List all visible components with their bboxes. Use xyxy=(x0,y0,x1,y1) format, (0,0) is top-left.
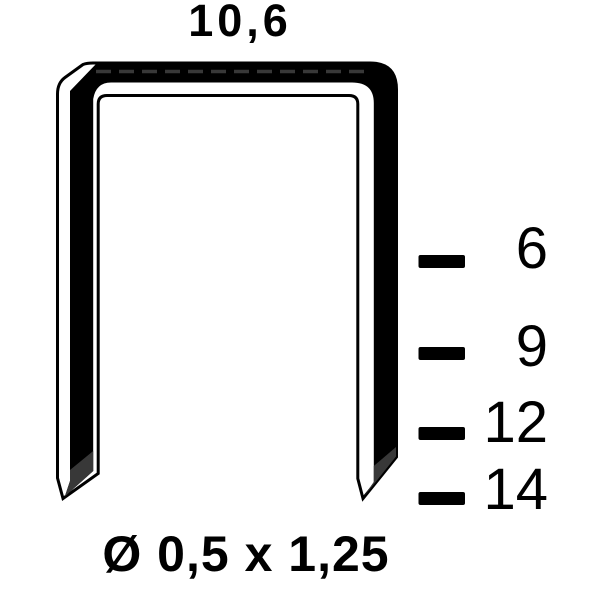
wire-spec-label: Ø 0,5 x 1,25 xyxy=(46,527,446,581)
crown-width-label: 10,6 xyxy=(90,0,390,45)
length-label-9: 9 xyxy=(428,318,548,376)
staple-wire-body xyxy=(65,64,396,498)
length-label-14: 14 xyxy=(428,461,548,519)
length-label-12: 12 xyxy=(428,394,548,452)
staple-dimension-diagram: 10,6 6 9 12 14 Ø 0,5 x 1,25 xyxy=(0,0,600,600)
length-label-6: 6 xyxy=(428,220,548,278)
staple-outline xyxy=(58,63,397,499)
